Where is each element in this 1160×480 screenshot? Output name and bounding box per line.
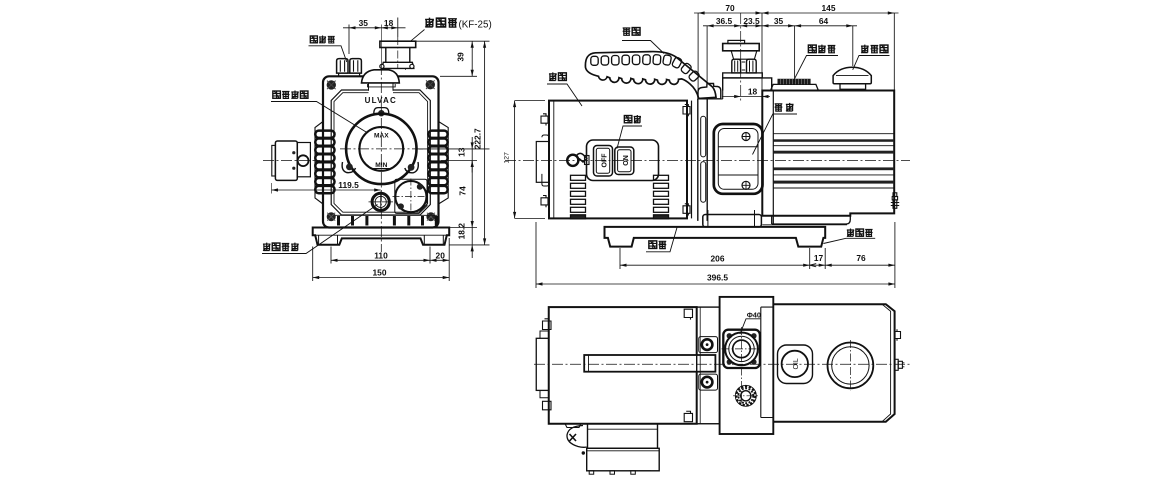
svg-text:OIL: OIL	[793, 358, 800, 369]
svg-text:18: 18	[384, 18, 394, 28]
svg-text:36.5: 36.5	[716, 16, 733, 26]
svg-text:18.2: 18.2	[457, 223, 467, 240]
svg-text:396.5: 396.5	[707, 273, 728, 283]
svg-text:76: 76	[856, 253, 866, 263]
svg-text:110: 110	[374, 250, 388, 260]
svg-text:39: 39	[456, 52, 466, 62]
svg-text:222.7: 222.7	[473, 128, 483, 149]
svg-text:23.5: 23.5	[743, 16, 760, 26]
svg-text:64: 64	[819, 16, 829, 26]
svg-text:35: 35	[359, 18, 369, 28]
svg-text:13: 13	[457, 147, 467, 157]
svg-text:206: 206	[711, 254, 725, 264]
svg-text:ULVAC: ULVAC	[365, 96, 397, 105]
svg-text:119.5: 119.5	[338, 180, 359, 190]
svg-text:145: 145	[822, 3, 836, 13]
svg-text:20: 20	[436, 250, 446, 260]
svg-text:150: 150	[373, 267, 387, 277]
svg-text:18: 18	[748, 86, 758, 96]
svg-text:70: 70	[725, 3, 735, 13]
svg-text:(KF-25): (KF-25)	[459, 19, 492, 30]
svg-text:35: 35	[774, 16, 784, 26]
svg-text:Φ40: Φ40	[747, 310, 761, 319]
svg-text:74: 74	[458, 186, 468, 196]
svg-text:127: 127	[504, 152, 511, 164]
svg-text:17: 17	[814, 253, 824, 263]
